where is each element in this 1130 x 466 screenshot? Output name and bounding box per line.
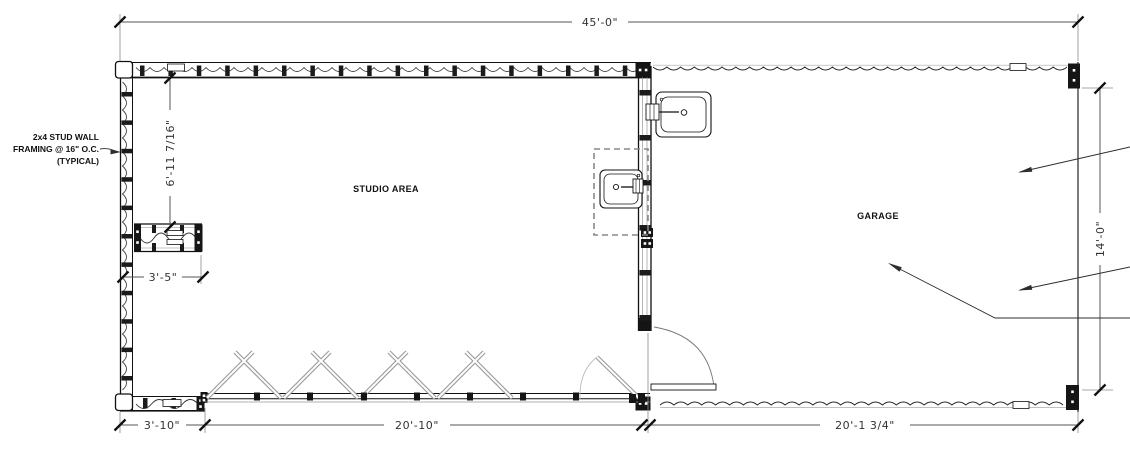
floor-plan-sheet: 45'-0" 3'-10" 20'-10" 20'-1 3/4" 3'-5" 6… bbox=[0, 0, 1130, 466]
note-line-1: 2x4 STUD WALL bbox=[33, 132, 99, 142]
faucet-icon bbox=[633, 179, 643, 193]
garage-label: GARAGE bbox=[857, 211, 899, 221]
corrugation-garage-bottom bbox=[660, 402, 1063, 405]
dim-folding-door-opening: 20'-10" bbox=[395, 419, 439, 432]
dim-garage-depth: 14'-0" bbox=[1094, 221, 1107, 257]
corrugation-garage-top bbox=[653, 67, 1067, 70]
folding-door-track bbox=[205, 394, 651, 403]
garage-container-walls bbox=[653, 62, 1078, 412]
wall-blocking bbox=[163, 64, 1029, 409]
door-leaf bbox=[651, 384, 716, 390]
floor-plan-drawing: 45'-0" 3'-10" 20'-10" 20'-1 3/4" 3'-5" 6… bbox=[0, 0, 1130, 466]
corner-post-top-left bbox=[116, 62, 133, 79]
dim-overall-width: 45'-0" bbox=[582, 16, 618, 29]
garage-sink bbox=[646, 92, 711, 137]
corner-castings bbox=[134, 63, 1080, 411]
studio-sink bbox=[600, 170, 643, 208]
hinge-block bbox=[638, 394, 645, 403]
door-swing-arc bbox=[580, 357, 597, 399]
faucet-icon bbox=[646, 104, 659, 120]
garage-entry-door bbox=[629, 327, 716, 403]
note-line-2: FRAMING @ 16" O.C. bbox=[13, 144, 99, 154]
folding-door-panels bbox=[207, 352, 639, 398]
dimension-lines bbox=[120, 22, 1100, 425]
hinge-block bbox=[629, 394, 636, 403]
dim-garage-length: 20'-1 3/4" bbox=[835, 419, 895, 432]
studio-area-label: STUDIO AREA bbox=[353, 184, 419, 194]
corner-post-bottom-left bbox=[116, 394, 133, 411]
stud-wall-note: 2x4 STUD WALL FRAMING @ 16" O.C. (TYPICA… bbox=[13, 132, 99, 166]
note-line-3: (TYPICAL) bbox=[57, 156, 99, 166]
door-swing-arc bbox=[654, 327, 714, 387]
insulation-top-wall bbox=[136, 68, 640, 72]
dim-studio-wall-segment: 6'-11 7/16" bbox=[164, 119, 177, 186]
studio-swing-door bbox=[580, 357, 597, 399]
dim-bottom-left-wall: 3'-10" bbox=[144, 419, 180, 432]
dim-stub-wall: 3'-5" bbox=[149, 271, 178, 284]
